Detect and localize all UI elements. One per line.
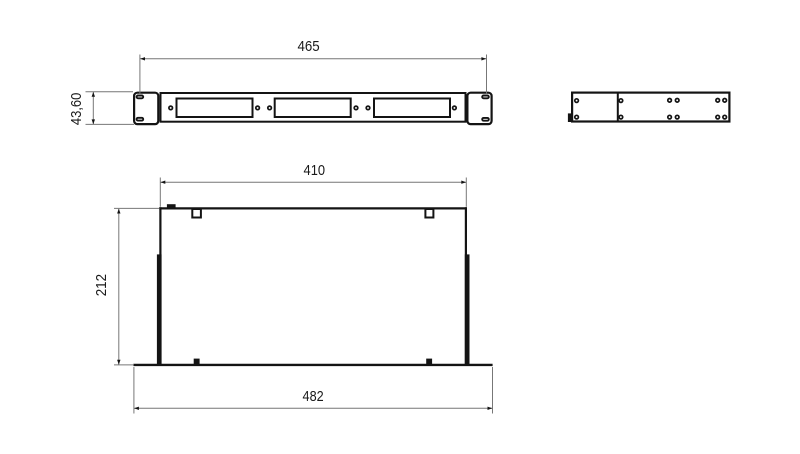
svg-text:43,60: 43,60 <box>68 93 85 126</box>
svg-text:212: 212 <box>93 274 110 296</box>
svg-text:482: 482 <box>303 388 324 405</box>
svg-text:410: 410 <box>304 162 326 179</box>
svg-text:465: 465 <box>298 38 320 55</box>
